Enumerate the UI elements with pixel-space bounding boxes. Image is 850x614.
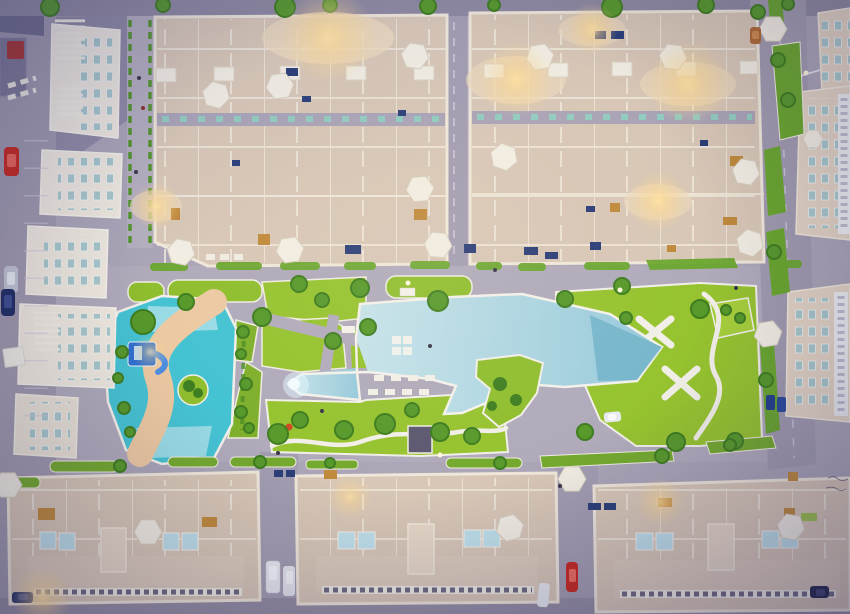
hedge-row-seg (518, 263, 546, 271)
navy-roof-item (590, 242, 601, 250)
warm-light-glow (328, 475, 372, 519)
lamp-dot (618, 288, 623, 293)
tree (351, 279, 369, 297)
tree (114, 460, 126, 472)
navy-roof-item (588, 503, 601, 510)
palm-tree (116, 346, 128, 358)
terrace-unit-box (612, 62, 632, 76)
planter-tree (235, 406, 247, 418)
navy-roof-item (586, 206, 595, 212)
warm-light-glow (628, 171, 688, 231)
warm-light-glow (646, 41, 730, 125)
warm-light-glow (132, 334, 168, 370)
sidewalk-hedge (50, 461, 118, 472)
car-navy-roof (4, 295, 12, 308)
warm-light-glow (478, 41, 554, 117)
scene-canvas (0, 0, 850, 614)
green-planter-box (801, 513, 817, 521)
wood-roof-item (202, 517, 217, 527)
terrace-unit-box (156, 68, 176, 82)
tree (735, 313, 745, 323)
tree (291, 276, 307, 292)
hedge-row-seg (344, 262, 376, 270)
tree (751, 5, 765, 19)
tree (254, 456, 266, 468)
tree (420, 0, 436, 14)
warm-light-glow (566, 3, 618, 55)
garage-stair-entry (408, 426, 432, 453)
wood-roof-item (414, 209, 427, 220)
terrace-unit-box (214, 67, 234, 81)
tree (721, 305, 731, 315)
hedge-row-seg (646, 258, 738, 270)
plunge-pool (358, 532, 375, 549)
car-red-roof (7, 154, 16, 167)
person (137, 76, 141, 80)
palm-tree (113, 373, 123, 383)
tree (428, 291, 448, 311)
wood-roof-item (667, 245, 676, 252)
sidewalk-hedge (446, 458, 522, 468)
tree (781, 93, 795, 107)
facade-windows (804, 98, 838, 228)
tree (292, 412, 308, 428)
tree (253, 308, 271, 326)
navy-roof-item (345, 245, 361, 254)
tree (131, 310, 155, 334)
pool-step-platform (392, 336, 401, 344)
tree (724, 439, 736, 451)
wood-roof-item (610, 203, 620, 212)
lamp-dot (438, 453, 443, 458)
planter-tree (240, 378, 252, 390)
pergola-slats (34, 312, 60, 352)
planter-tree (236, 349, 246, 359)
wood-roof-item (723, 217, 737, 225)
wood-roof-item (324, 470, 337, 479)
car-red-roof (569, 569, 576, 582)
plunge-pool (59, 533, 75, 550)
navy-roof-item (545, 252, 558, 259)
tree (325, 458, 335, 468)
hedge-row-seg (584, 262, 630, 270)
warm-light-glow (636, 478, 684, 526)
pergola-slats (57, 84, 83, 118)
car-white-roof (608, 414, 617, 421)
tree (767, 245, 781, 259)
plunge-pool (338, 532, 355, 549)
tree (464, 428, 480, 444)
tree (375, 414, 395, 434)
plunge-pool (163, 533, 179, 550)
tree (494, 457, 506, 469)
car-dark-roof (816, 589, 825, 596)
sidewalk-hedge (168, 457, 218, 467)
aerial-render-viewport (0, 0, 850, 614)
tree (667, 433, 685, 451)
tree (360, 319, 376, 335)
tree (41, 0, 59, 16)
tree (431, 423, 449, 441)
planter-tree (237, 326, 249, 338)
warm-light-glow (132, 182, 180, 230)
navy-roof-item (398, 110, 406, 116)
wood-roof-item (258, 234, 270, 245)
hedge-row-seg (410, 261, 450, 269)
palm-tree (125, 427, 135, 437)
person (734, 286, 738, 290)
person (428, 344, 432, 348)
navy-roof-item (232, 160, 240, 166)
plunge-pool (464, 530, 481, 547)
palm-tree (118, 402, 130, 414)
lamp-dot (406, 281, 411, 286)
streetlight-lamp (804, 71, 809, 76)
car-silver-roof (7, 272, 15, 285)
navy-roof-item (274, 470, 283, 477)
island-palm-tree (193, 388, 203, 398)
island-palm-tree (183, 380, 195, 392)
navy-roof-item (302, 96, 311, 102)
van-white-roof (269, 566, 277, 580)
tree (315, 293, 329, 307)
tree (698, 0, 714, 13)
tree (335, 421, 353, 439)
beach-wedge-light (288, 378, 300, 390)
block1-stair-tower (101, 528, 126, 572)
hedge-row-seg (476, 262, 502, 270)
wood-roof-item (38, 508, 55, 520)
person (320, 409, 324, 413)
block3-stair-tower (708, 524, 734, 570)
navy-roof-item (604, 503, 616, 510)
tree (782, 0, 794, 10)
facade-windows (58, 314, 110, 380)
van-white-roof (286, 571, 293, 584)
plunge-pool (656, 533, 673, 550)
plunge-pool (40, 532, 56, 549)
block2-stair-tower (408, 524, 434, 574)
person (276, 451, 280, 455)
tree (557, 291, 573, 307)
tree (759, 373, 773, 387)
lawn-patch-upper (262, 277, 366, 322)
facade-windows (30, 402, 70, 450)
peninsula-palm-tree (493, 377, 507, 391)
tree (614, 278, 630, 294)
hedge-row-seg (216, 262, 262, 270)
pool-step-platform (392, 347, 401, 355)
scene-root (0, 0, 850, 614)
tree (268, 424, 288, 444)
navy-roof-item (700, 140, 708, 146)
person (558, 484, 562, 488)
terrace-unit-box (740, 61, 758, 74)
wood-roof-item (788, 472, 798, 481)
tree (156, 0, 170, 12)
facade-windows (822, 18, 850, 84)
tree (325, 333, 341, 349)
facade-windows (792, 298, 830, 410)
pool-step-platform (403, 347, 412, 355)
tree (405, 403, 419, 417)
person (493, 268, 497, 272)
plunge-pool (636, 533, 653, 550)
car-navy (777, 397, 786, 412)
navy-roof-item (286, 470, 295, 477)
tree (178, 294, 194, 310)
tree (488, 0, 500, 11)
navy-roof-item (464, 244, 476, 253)
car-navy (766, 395, 775, 410)
planter-tree (244, 423, 254, 433)
tree (691, 300, 709, 318)
tree (655, 449, 669, 463)
navy-roof-item (524, 247, 538, 255)
lawn-sign (342, 326, 355, 333)
peninsula-palm-tree (487, 401, 497, 411)
facade-windows (58, 158, 114, 210)
plunge-pool (762, 531, 779, 548)
pergola-slats (55, 16, 85, 62)
red-terrace-sofa (7, 41, 24, 59)
lawn-sign (400, 288, 415, 296)
tree (771, 53, 785, 67)
tree (577, 424, 593, 440)
tree (620, 312, 632, 324)
peninsula-palm-tree (510, 394, 522, 406)
car-orange-roof (752, 31, 759, 39)
white-canopy (3, 347, 25, 368)
person (134, 170, 138, 174)
person (141, 106, 145, 110)
plunge-pool (182, 533, 198, 550)
facade-windows (44, 234, 100, 290)
pool-step-platform (403, 336, 412, 344)
